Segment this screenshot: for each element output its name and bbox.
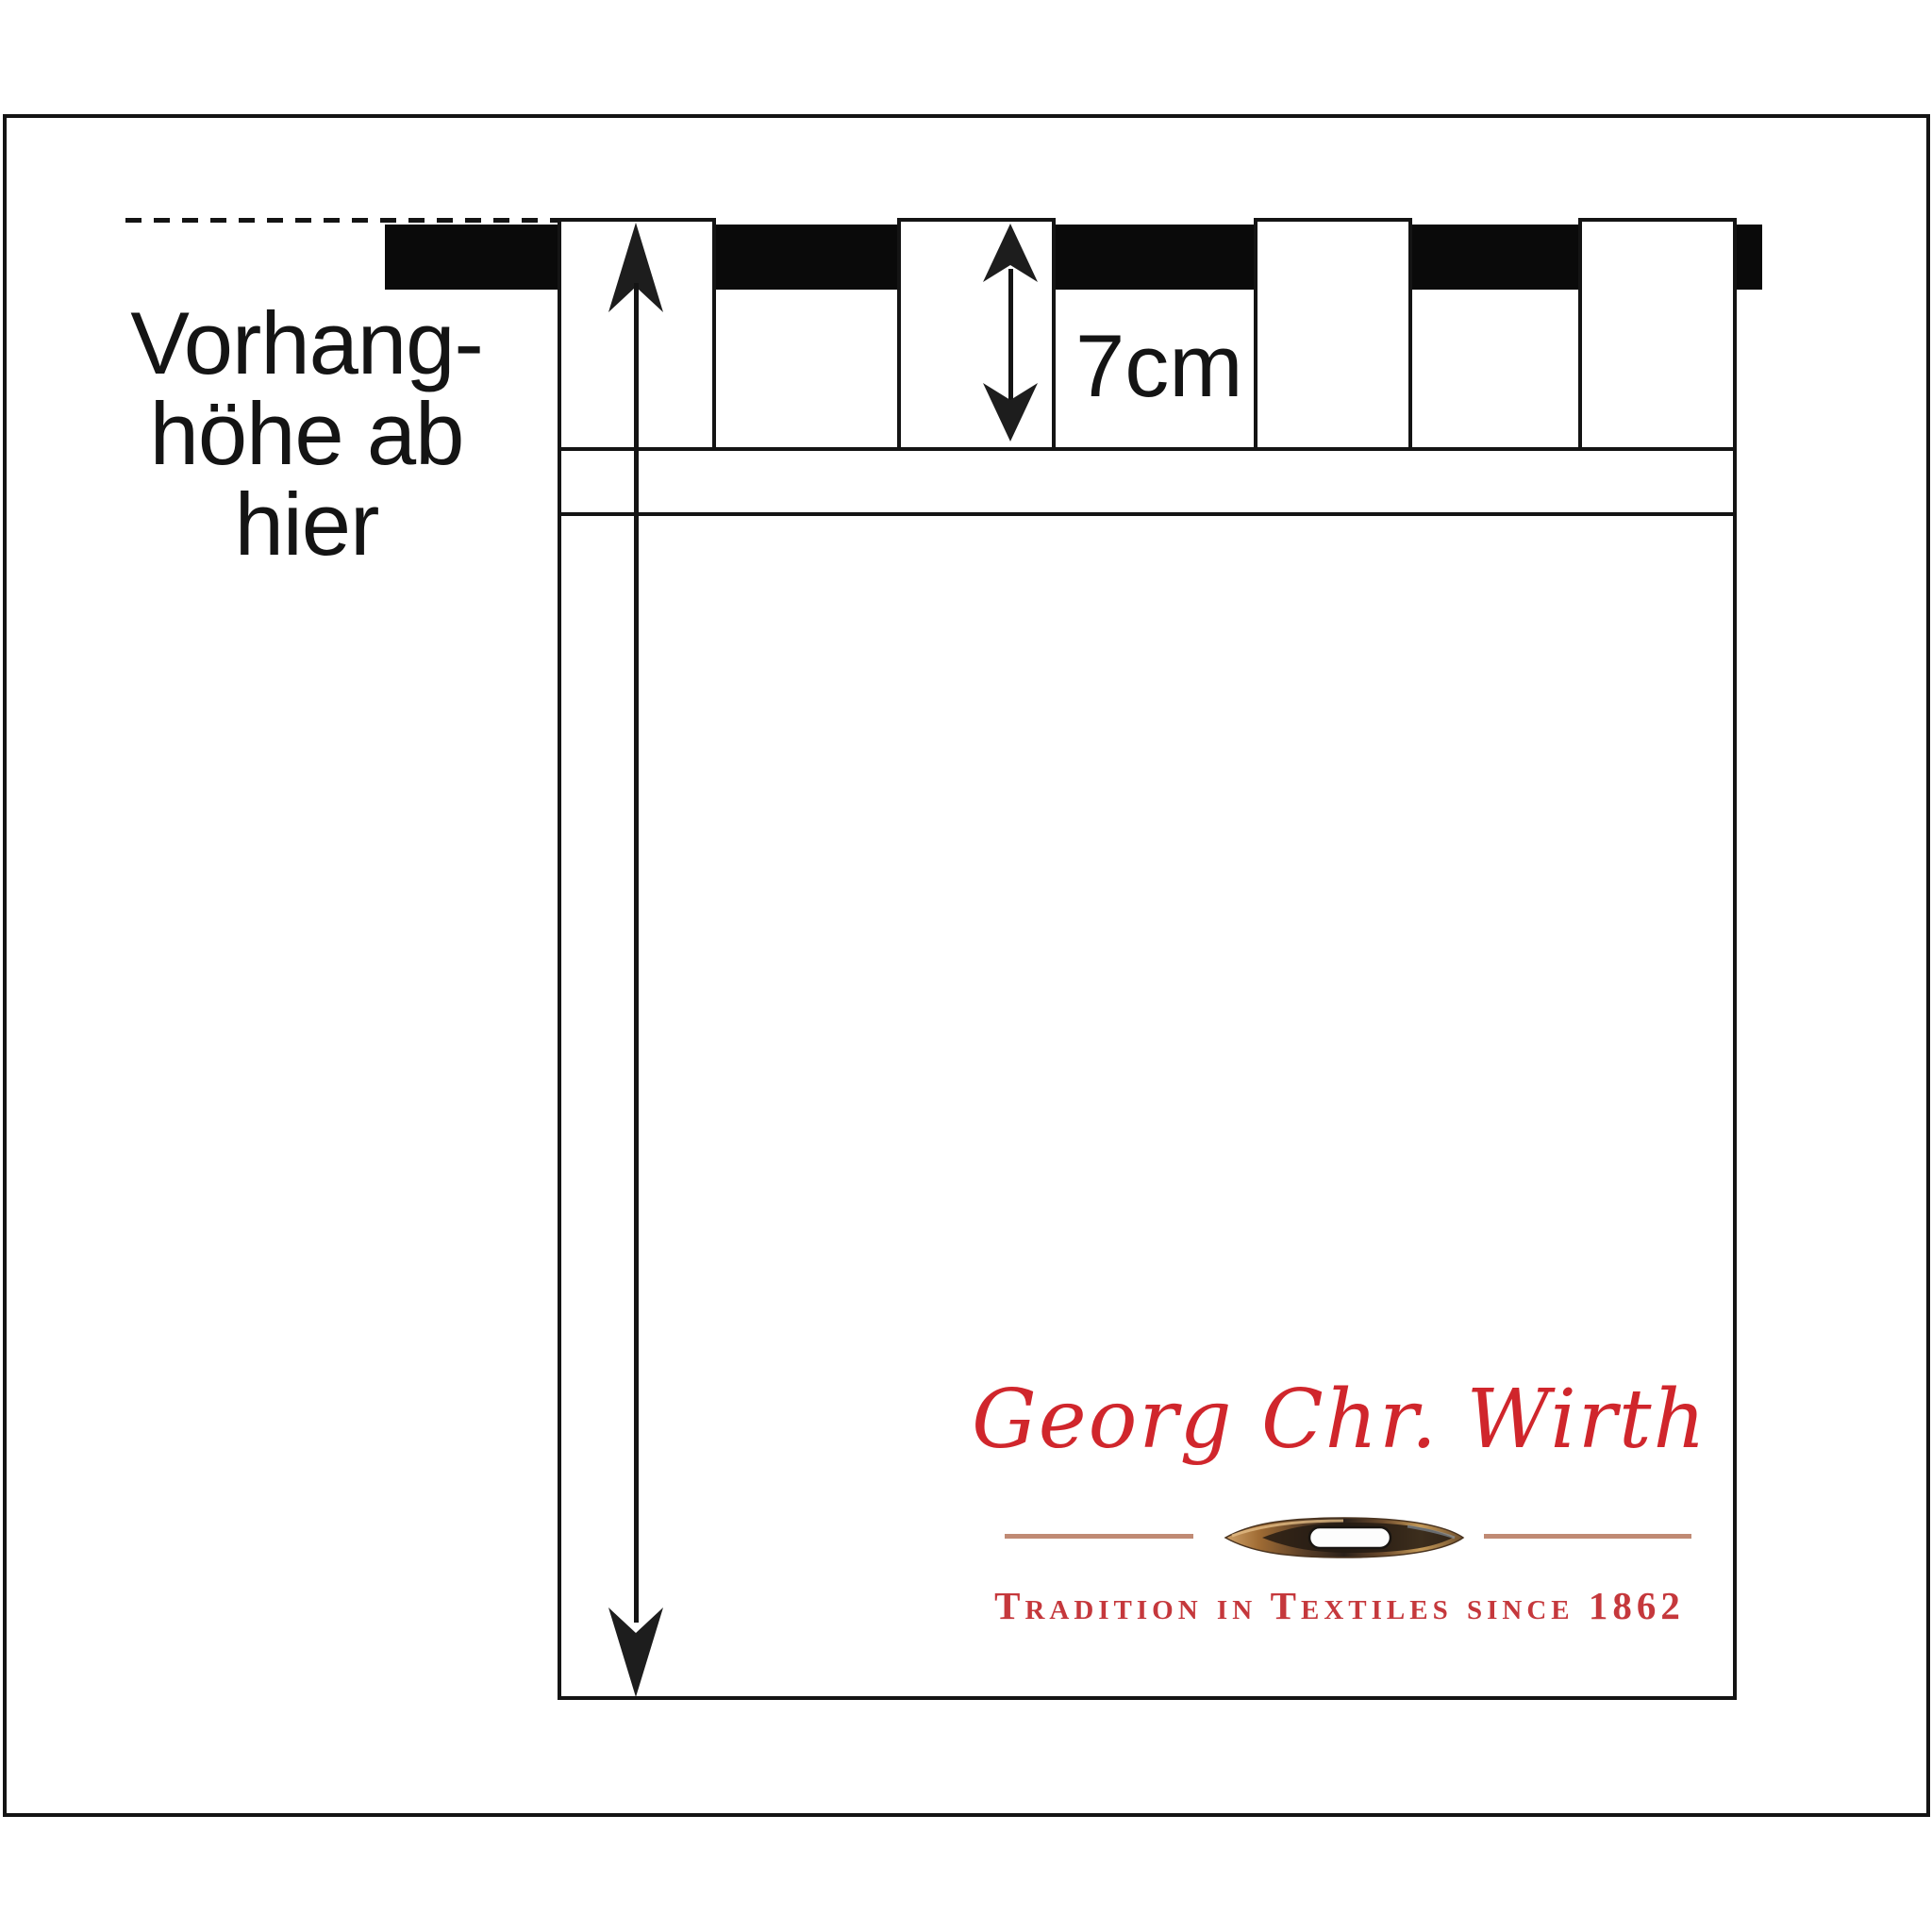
curtain-height-label-line2: höhe ab xyxy=(57,389,557,479)
brand-tagline: Tradition in Textiles since 1862 xyxy=(962,1585,1717,1627)
curtain-height-label-line1: Vorhang- xyxy=(57,298,557,389)
brand-title: Georg Chr. Wirth xyxy=(962,1379,1717,1460)
curtain-measurement-diagram: Vorhang- höhe ab hier 7cm Georg Chr. Wir… xyxy=(0,0,1932,1932)
curtain-tab-3 xyxy=(1254,218,1412,451)
curtain-height-label-line3: hier xyxy=(57,479,557,570)
header-seam-line xyxy=(561,512,1733,516)
curtain-top-reference-dashed-line xyxy=(125,218,558,223)
curtain-tab-4 xyxy=(1578,218,1737,451)
tab-height-label: 7cm xyxy=(1075,319,1243,413)
logo-divider-right xyxy=(1484,1534,1691,1539)
needle-icon xyxy=(1223,1513,1466,1562)
arrowhead-down-icon xyxy=(983,383,1038,441)
logo-divider-left xyxy=(1005,1534,1193,1539)
arrow-shaft xyxy=(634,283,639,1623)
arrowhead-down-icon xyxy=(608,1607,663,1697)
curtain-height-label: Vorhang- höhe ab hier xyxy=(57,298,557,570)
brand-logo: Georg Chr. Wirth Tradition in Te xyxy=(962,1358,1717,1660)
